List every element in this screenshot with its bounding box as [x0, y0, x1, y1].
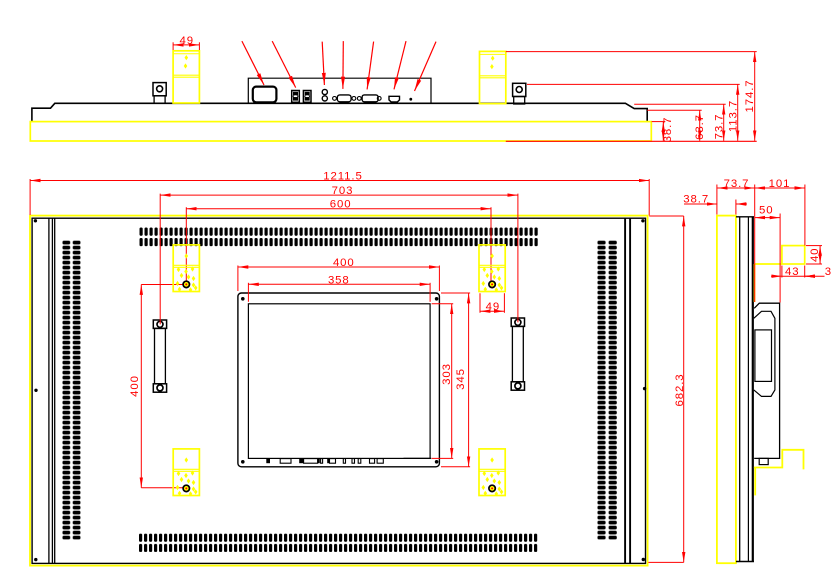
svg-text:113.7: 113.7	[727, 100, 739, 132]
svg-text:63.7: 63.7	[694, 114, 706, 140]
svg-text:50: 50	[759, 205, 773, 217]
svg-text:38.7: 38.7	[662, 117, 674, 143]
svg-text:1211.5: 1211.5	[323, 170, 362, 182]
svg-text:703: 703	[332, 185, 354, 197]
svg-text:303: 303	[441, 363, 453, 385]
svg-text:3: 3	[825, 266, 832, 278]
svg-text:682.3: 682.3	[674, 373, 686, 406]
svg-text:345: 345	[455, 368, 467, 390]
svg-text:49: 49	[486, 301, 500, 313]
svg-text:38.7: 38.7	[683, 194, 709, 206]
svg-text:73.7: 73.7	[724, 178, 750, 190]
svg-text:73.7: 73.7	[713, 114, 725, 140]
svg-text:40: 40	[809, 248, 821, 262]
svg-text:43: 43	[785, 266, 799, 278]
svg-text:101: 101	[769, 178, 791, 190]
svg-text:358: 358	[328, 274, 350, 286]
svg-text:174.7: 174.7	[744, 79, 756, 112]
svg-text:400: 400	[333, 257, 355, 269]
svg-text:600: 600	[330, 199, 352, 211]
svg-text:400: 400	[129, 375, 141, 397]
svg-text:49: 49	[180, 35, 194, 47]
